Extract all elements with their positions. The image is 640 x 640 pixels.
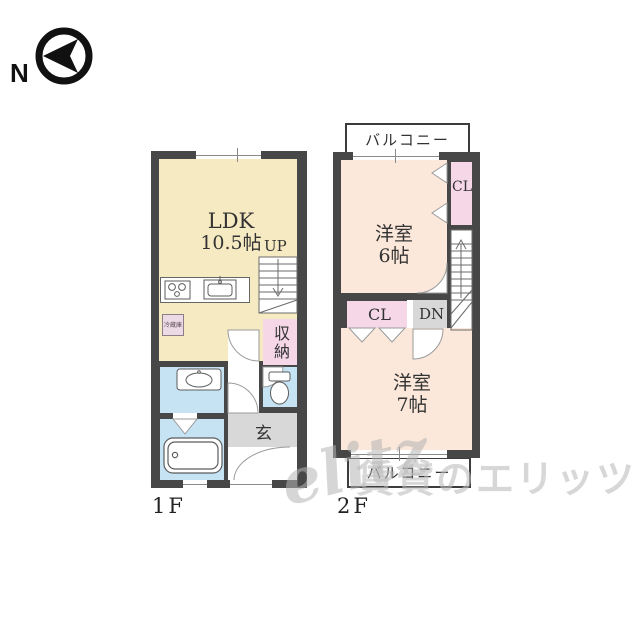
floor2-label: 2F xyxy=(337,494,371,518)
entrance-door-arc xyxy=(234,447,290,480)
stairs-1f xyxy=(259,257,297,313)
washroom-door-arc xyxy=(228,383,258,413)
closet-upper-door-mark xyxy=(432,163,447,183)
floor1-label: 1F xyxy=(152,494,186,518)
balcony-bottom: バルコニー xyxy=(347,457,471,488)
floor2-linework xyxy=(333,152,480,458)
closet-mid-folding-door xyxy=(349,328,375,342)
west6-door-arc xyxy=(417,263,447,293)
ldk-door-arc xyxy=(228,330,259,361)
north-compass-icon xyxy=(32,24,96,88)
toilet-icon xyxy=(269,372,290,404)
watermark: elitz 賃貸のエリッツ xyxy=(0,0,640,640)
closet-mid-folding-door xyxy=(379,328,405,342)
floor1-linework xyxy=(151,151,307,488)
stove-icon xyxy=(165,281,190,299)
floor1-plan: 冷蔵庫 LDK 10.5帖 UP 収納 玄 xyxy=(151,151,307,488)
floorplan-canvas: N 冷蔵庫 LDK 10.5帖 UP 収納 玄 xyxy=(0,0,640,640)
vanity-sink-icon xyxy=(177,369,221,390)
closet-upper-door-mark xyxy=(432,203,447,223)
hall-door-arc xyxy=(413,329,443,359)
stairs-2f xyxy=(451,230,472,330)
balcony-bottom-label: バルコニー xyxy=(367,462,452,483)
bathtub-icon xyxy=(164,438,222,473)
floor2-plan: 洋室 6帖 CL CL DN 洋室 7帖 xyxy=(333,152,480,458)
sink-icon xyxy=(204,276,236,299)
bathroom-door-mark xyxy=(173,419,197,434)
balcony-top: バルコニー xyxy=(345,123,470,155)
north-label: N xyxy=(10,58,29,89)
doors-2f xyxy=(349,163,447,359)
balcony-top-label: バルコニー xyxy=(365,129,450,150)
